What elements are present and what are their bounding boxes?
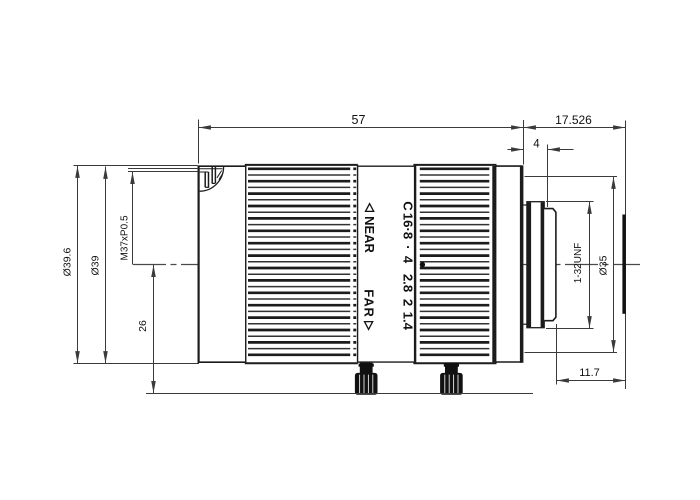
- svg-text:16·8: 16·8: [401, 213, 416, 239]
- svg-text:4: 4: [533, 139, 540, 151]
- svg-text:17.526: 17.526: [555, 113, 592, 127]
- svg-text:Ø35: Ø35: [598, 255, 610, 275]
- svg-text:26: 26: [137, 320, 149, 332]
- svg-text:Ø39: Ø39: [90, 255, 102, 275]
- svg-text:FAR: FAR: [362, 289, 377, 317]
- svg-text:1-32UNF: 1-32UNF: [573, 243, 584, 284]
- svg-text:Ø39.6: Ø39.6: [62, 248, 74, 277]
- svg-text:2.8: 2.8: [401, 274, 416, 292]
- svg-text:2: 2: [401, 299, 416, 306]
- svg-text:57: 57: [352, 113, 366, 127]
- svg-text:M37xP0.5: M37xP0.5: [120, 215, 131, 260]
- svg-text:C: C: [401, 201, 416, 211]
- svg-text:11.7: 11.7: [579, 367, 600, 379]
- svg-text:NEAR: NEAR: [362, 216, 377, 253]
- svg-text:·: ·: [401, 245, 416, 249]
- svg-text:1.4: 1.4: [401, 312, 416, 331]
- svg-text:4: 4: [401, 256, 416, 264]
